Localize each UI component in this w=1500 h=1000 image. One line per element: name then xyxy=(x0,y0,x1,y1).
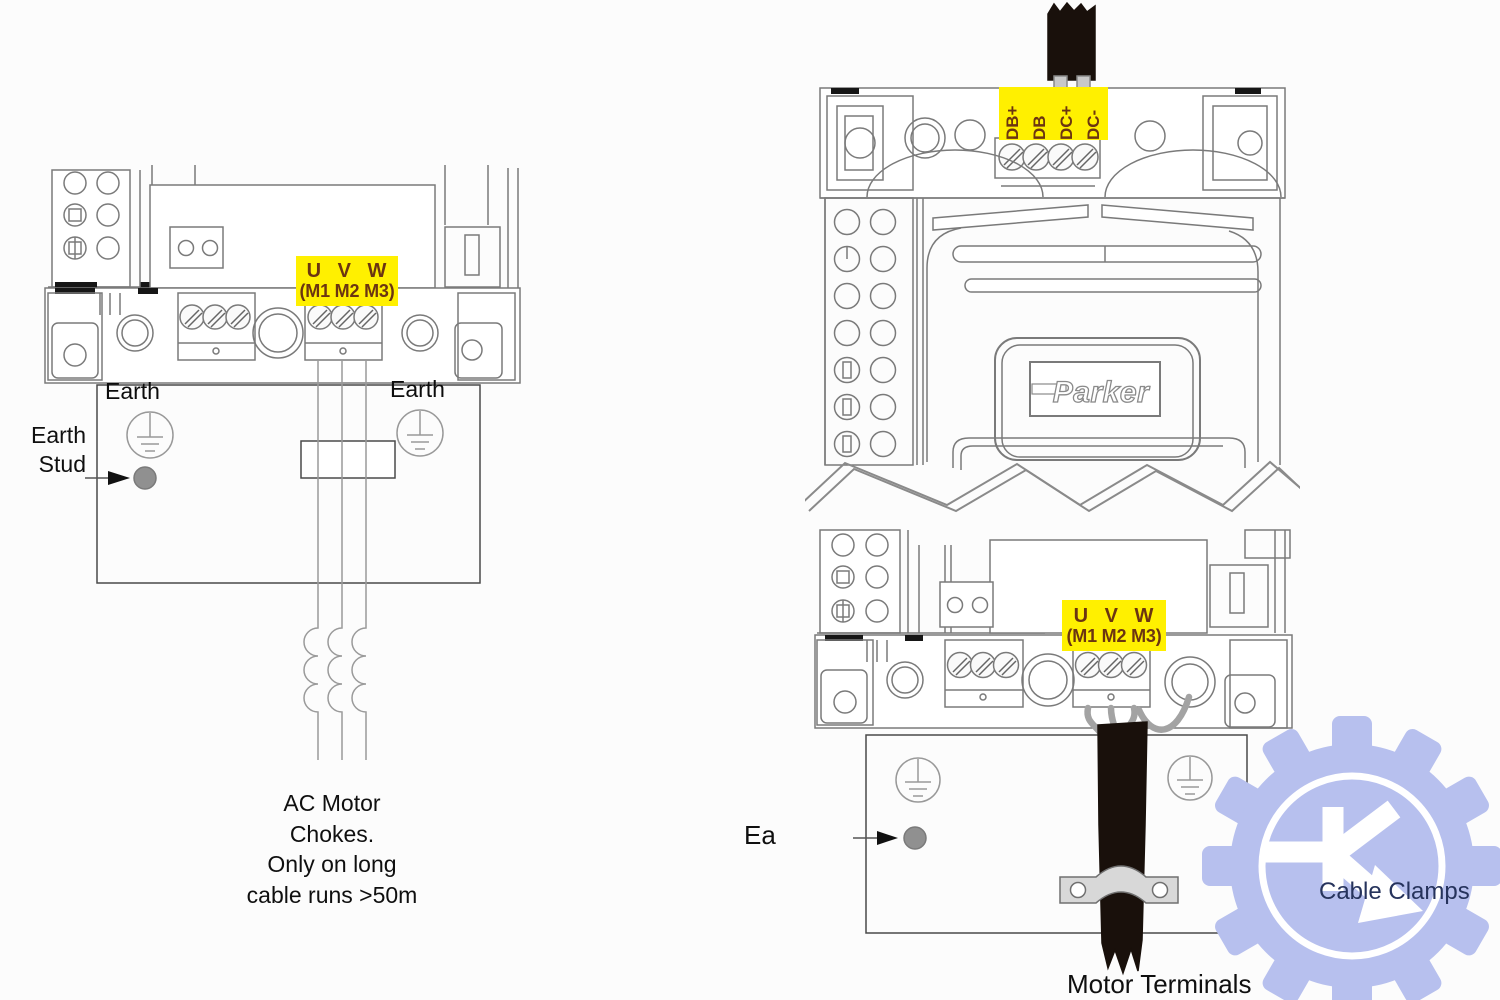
earth-stud-line2: Stud xyxy=(8,450,86,479)
arrow-icon xyxy=(853,831,898,845)
earth-stud-line1: Earth xyxy=(8,421,86,450)
cable-clamps-label: Cable Clamps xyxy=(1319,878,1470,906)
right-drive-top-view: Parker xyxy=(805,0,1300,515)
earth-stud-label: Earth Stud xyxy=(8,421,86,479)
earth-label-left: Earth xyxy=(105,378,160,405)
vent-panel xyxy=(820,530,900,633)
break-line xyxy=(805,462,1300,511)
earth-symbol-icon xyxy=(397,410,443,456)
chokes-line2: Chokes. xyxy=(212,819,452,850)
earth-symbol-icon xyxy=(896,758,940,802)
dc-plus-text: DC+ xyxy=(1057,87,1077,140)
earth-symbol-icon xyxy=(127,412,173,458)
motor-terminal-label-left: U V W (M1 M2 M3) xyxy=(296,256,398,306)
parker-logo-text: Parker xyxy=(1053,376,1151,409)
vent-panel xyxy=(825,198,913,465)
motor-terminals-caption: Motor Terminals xyxy=(1067,969,1251,1000)
vent-panel xyxy=(52,170,130,287)
aux-terminal-block xyxy=(170,227,223,268)
terminal-strip xyxy=(45,288,520,383)
choke-coils-icon xyxy=(304,360,366,760)
chokes-note: AC Motor Chokes. Only on long cable runs… xyxy=(212,788,452,910)
right-bracket xyxy=(445,227,500,287)
m1m2m3-text: (M1 M2 M3) xyxy=(1062,627,1166,647)
ea-label: Ea xyxy=(744,820,776,851)
parker-logo: Parker xyxy=(1030,362,1160,416)
uvw-text: U V W xyxy=(296,260,398,282)
right-bracket xyxy=(1210,530,1290,627)
gear-watermark-icon xyxy=(1200,715,1500,1000)
arrow-icon xyxy=(85,471,130,485)
dc-cable xyxy=(1048,3,1095,93)
chokes-line3: Only on long xyxy=(212,849,452,880)
chokes-line4: cable runs >50m xyxy=(212,880,452,911)
db-text: DB xyxy=(1030,87,1050,140)
dc-minus-text: DC- xyxy=(1084,87,1104,140)
m1m2m3-text: (M1 M2 M3) xyxy=(296,282,398,302)
aux-terminal-block xyxy=(940,582,993,627)
motor-cable xyxy=(1098,722,1147,973)
chokes-line1: AC Motor xyxy=(212,788,452,819)
motor-terminal-label-right: U V W (M1 M2 M3) xyxy=(1062,600,1166,651)
dc-terminal-label: DB+ DB DC+ DC- xyxy=(999,87,1108,140)
earth-label-right: Earth xyxy=(390,376,445,403)
earth-stud-dot xyxy=(134,467,156,489)
uvw-text: U V W xyxy=(1062,605,1166,627)
earth-stud-dot xyxy=(904,827,926,849)
db-plus-text: DB+ xyxy=(1003,87,1023,140)
